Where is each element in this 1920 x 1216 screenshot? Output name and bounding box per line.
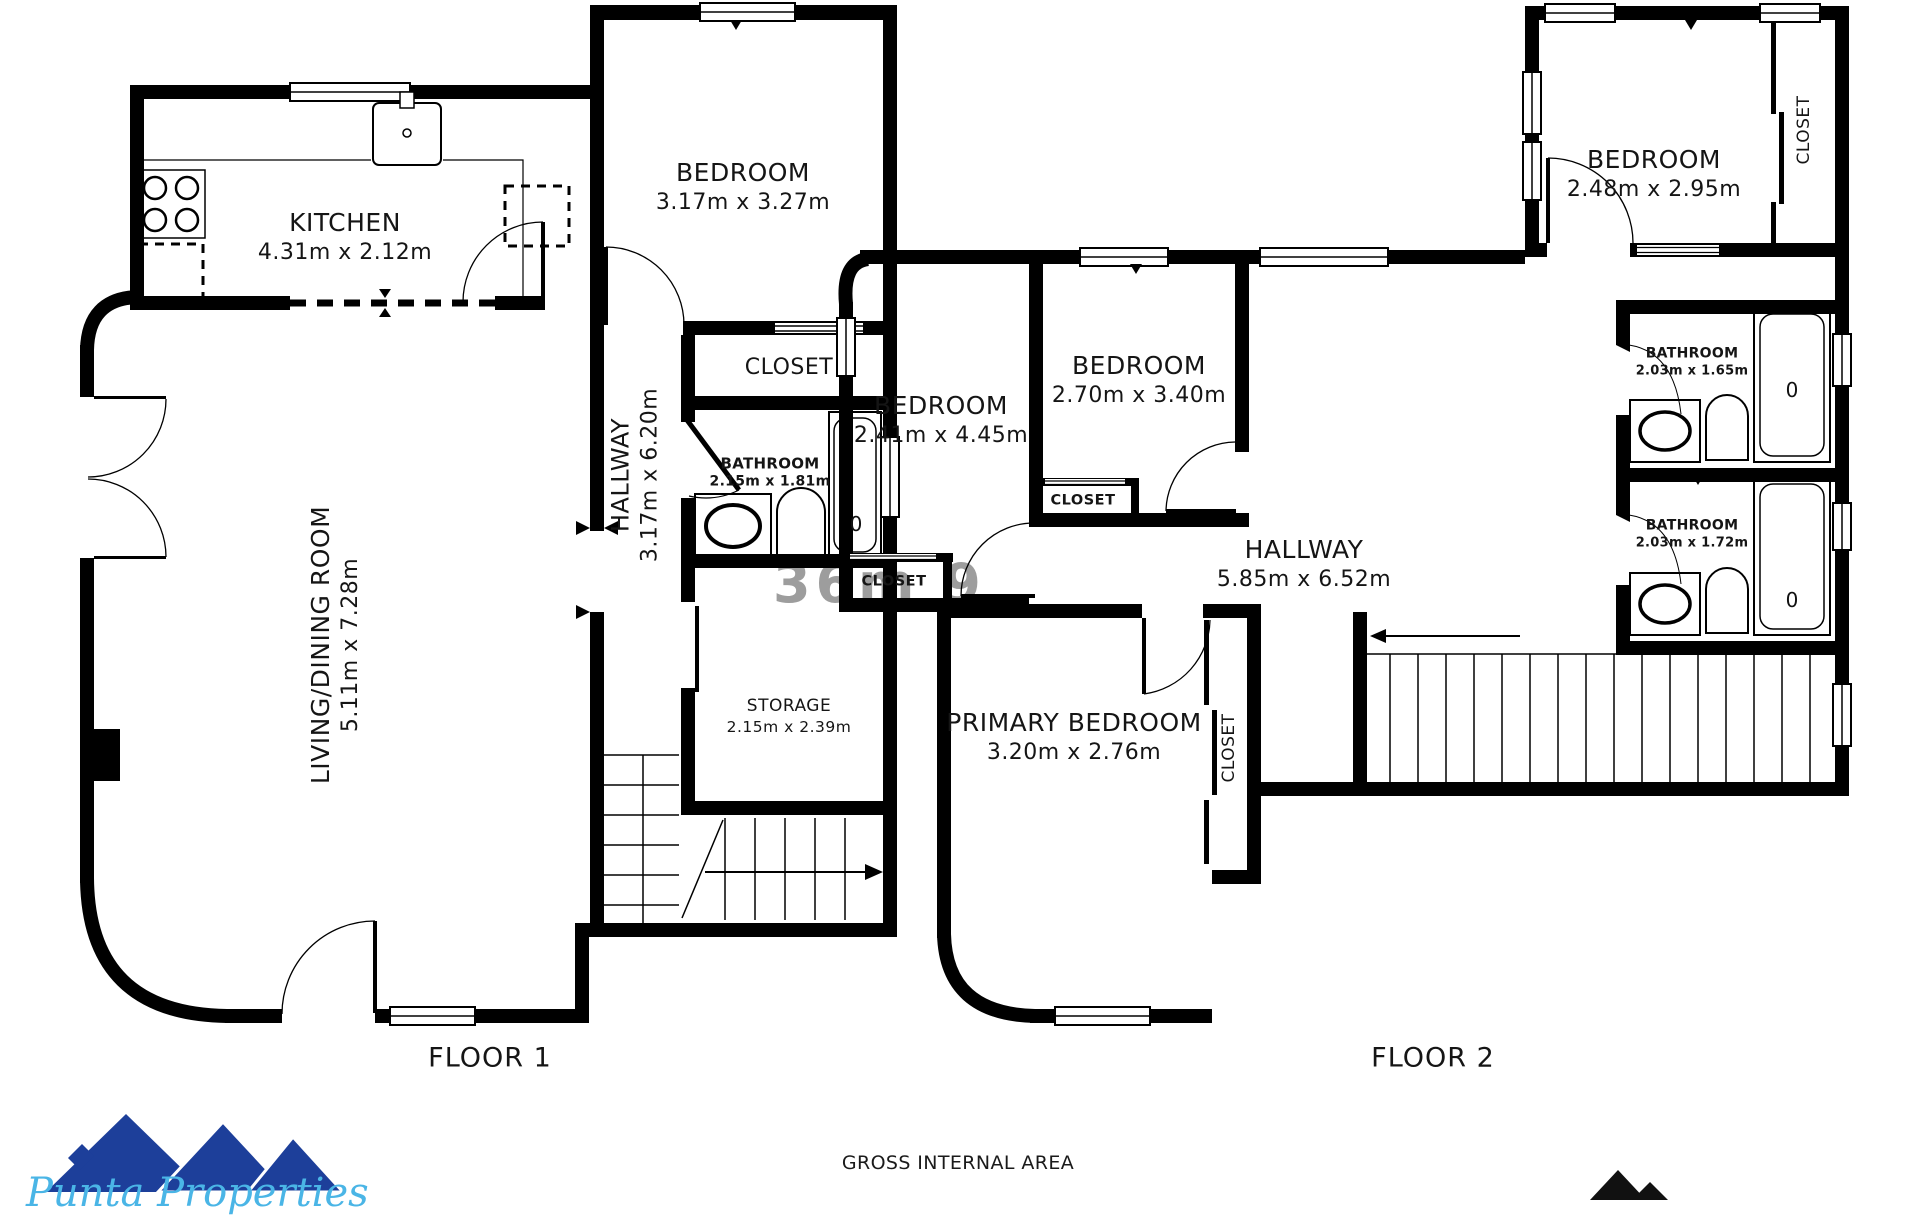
room-label-bedroom-left: BEDROOM 2.41m x 4.45m [854,390,1028,450]
room-label-bathroom-upper: BATHROOM 2.03m x 1.65m [1636,346,1749,381]
bedroom-door [604,247,684,325]
storage-pocket-door [695,606,699,692]
gross-internal-area-label: GROSS INTERNAL AREA [842,1152,1074,1174]
primary-bedroom-door [1142,618,1210,694]
room-label-closet-primary: CLOSET [1219,713,1241,782]
tub-faucet-mark-lower: 0 [1786,588,1799,612]
stairs [1367,636,1835,782]
toilet [695,494,771,558]
room-label-hallway-f2: HALLWAY 5.85m x 6.52m [1217,534,1391,594]
floor2-title: FLOOR 2 [1371,1042,1495,1077]
wall-curve [845,259,868,304]
french-doors [88,396,166,559]
sink [777,488,825,558]
living-room-door [282,921,377,1014]
tub-faucet-mark-f1: 0 [850,512,863,536]
room-label-bedroom-middle: BEDROOM 2.70m x 3.40m [1052,350,1226,410]
bedroom-middle-door [1166,442,1236,513]
wall-curve [944,934,1035,1016]
toilet-upper [1630,400,1700,462]
room-label-closet-f1: CLOSET [745,354,833,382]
room-label-bedroom-top: BEDROOM 2.48m x 2.95m [1567,144,1741,204]
room-label-bathroom-lower: BATHROOM 2.03m x 1.72m [1636,518,1749,553]
room-label-living-dining: LIVING/DINING ROOM 5.11m x 7.28m [305,506,365,784]
stair-arrow [1370,629,1386,643]
bedroom-left-door [961,523,1035,598]
stove [137,170,205,238]
room-label-kitchen: KITCHEN 4.31m x 2.12m [258,207,432,267]
room-label-closet-top: CLOSET [1794,95,1816,164]
sink-upper [1706,395,1748,460]
wall-curve [87,878,227,1016]
tub-faucet-mark-upper: 0 [1786,378,1799,402]
room-label-closet-left: CLOSET [862,573,927,592]
room-label-primary-bedroom: PRIMARY BEDROOM 3.20m x 2.76m [946,707,1201,767]
room-label-hallway-f1: HALLWAY 3.17m x 6.20m [606,388,665,562]
room-label-bedroom-f1: BEDROOM 3.17m x 3.27m [656,157,830,217]
stairs [604,755,865,923]
room-label-storage: STORAGE 2.15m x 2.39m [727,696,852,738]
compass-mark [1570,1165,1680,1200]
toilet-lower [1630,573,1700,635]
floor1-title: FLOOR 1 [428,1042,552,1077]
room-label-closet-middle: CLOSET [1051,492,1116,511]
sink-lower [1706,568,1748,633]
wall-curve [87,297,137,350]
kitchen-sink [373,92,441,165]
room-label-bathroom-f1: BATHROOM 2.15m x 1.81m [710,454,831,491]
logo-script-text: Punta Properties [26,1170,369,1216]
